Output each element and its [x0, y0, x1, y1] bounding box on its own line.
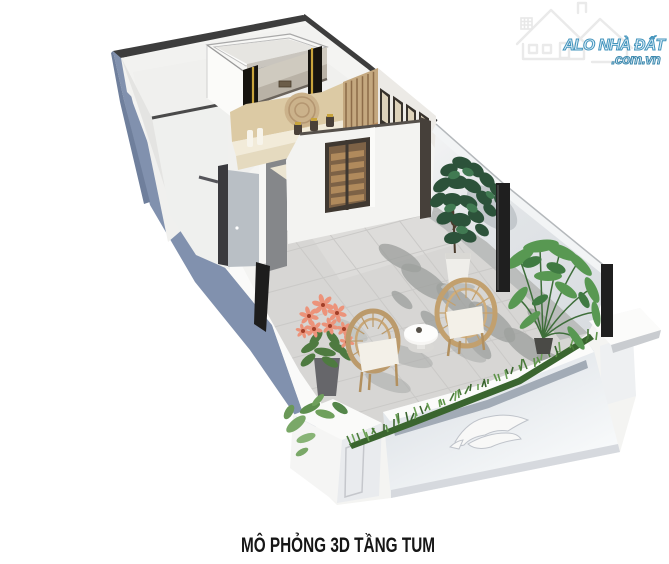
svg-text:.com.vn: .com.vn	[612, 52, 661, 67]
svg-text:MÔ PHỎNG 3D TẦNG TUM: MÔ PHỎNG 3D TẦNG TUM	[241, 533, 435, 557]
